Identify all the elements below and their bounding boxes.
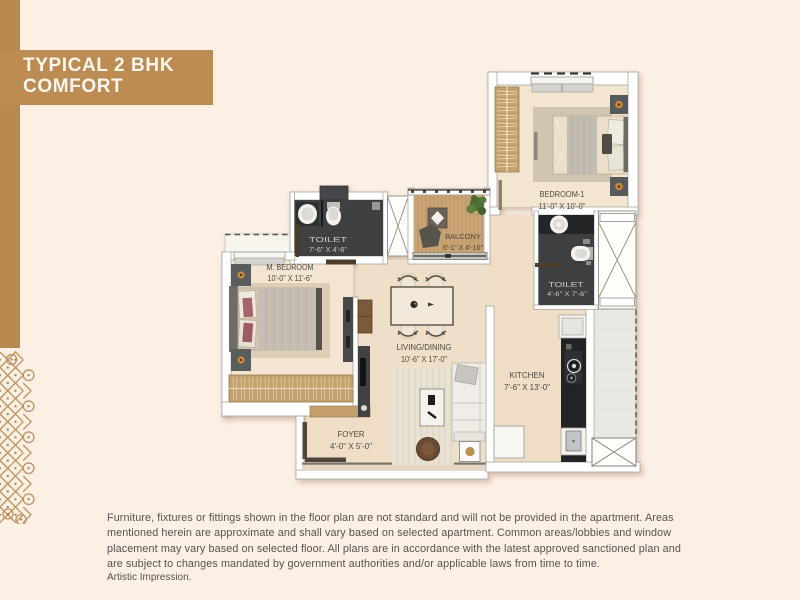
- svg-text:M. BEDROOM: M. BEDROOM: [267, 262, 314, 272]
- svg-text:FOYER: FOYER: [338, 429, 365, 439]
- svg-text:11'-0" X 10'-0": 11'-0" X 10'-0": [539, 202, 586, 211]
- svg-text:4'-0" X 5'-0": 4'-0" X 5'-0": [330, 442, 372, 451]
- svg-text:6'-1" X 4'-10": 6'-1" X 4'-10": [443, 245, 483, 252]
- svg-text:10'-0" X 11'-6": 10'-0" X 11'-6": [268, 274, 313, 283]
- svg-text:7'-6" X 4'-6": 7'-6" X 4'-6": [309, 247, 348, 254]
- svg-text:TOILET: TOILET: [309, 235, 348, 244]
- svg-text:10'-6" X 17'-0": 10'-6" X 17'-0": [401, 355, 447, 364]
- svg-text:KITCHEN: KITCHEN: [510, 370, 545, 380]
- svg-text:TOILET: TOILET: [549, 280, 585, 289]
- svg-text:4'-6" X 7'-6": 4'-6" X 7'-6": [547, 291, 588, 298]
- svg-text:BALCONY: BALCONY: [445, 232, 481, 241]
- svg-text:BEDROOM-1: BEDROOM-1: [540, 189, 585, 199]
- svg-text:7'-6" X 13'-0": 7'-6" X 13'-0": [504, 383, 550, 392]
- svg-text:LIVING/DINING: LIVING/DINING: [397, 342, 452, 352]
